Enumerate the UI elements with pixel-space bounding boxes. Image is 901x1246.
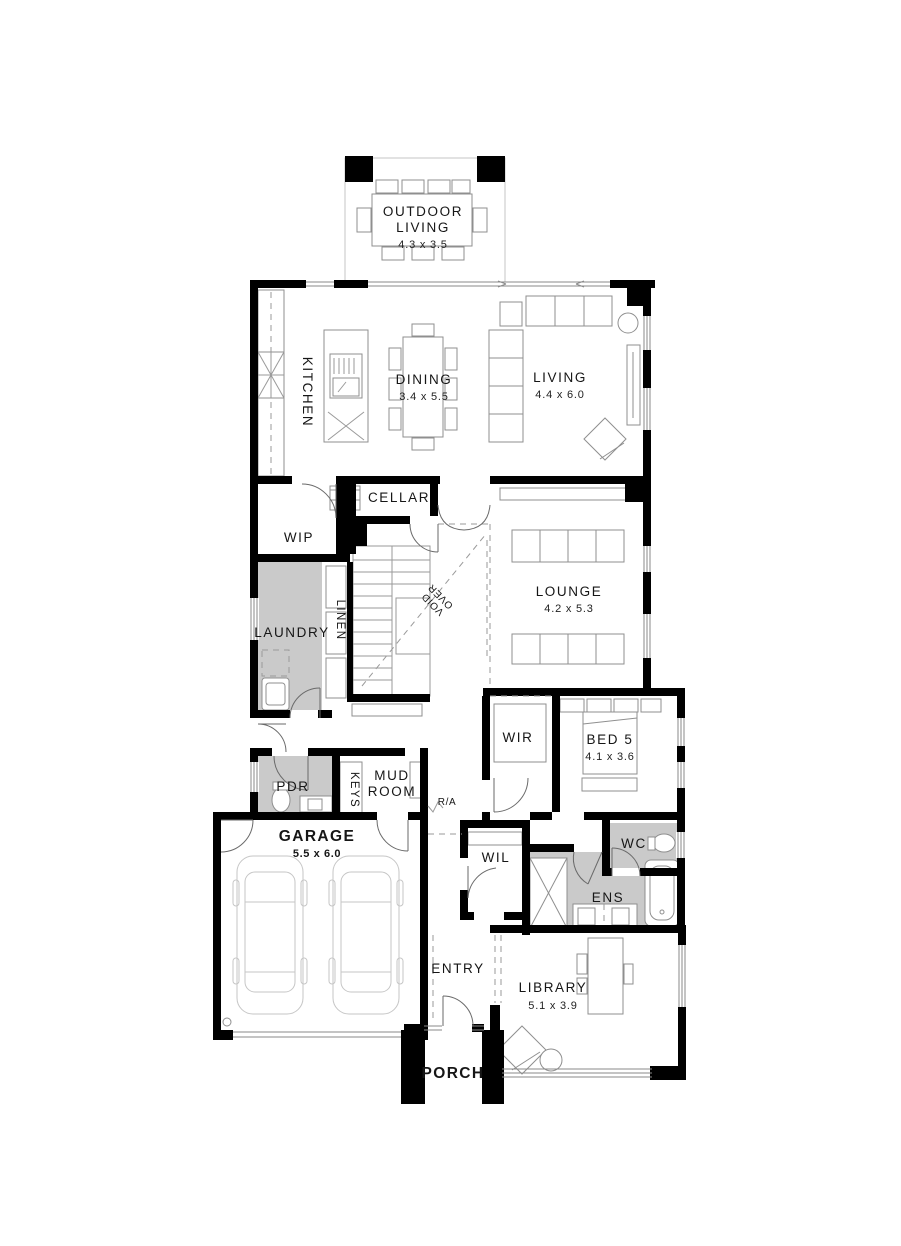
label-void-over: VOID OVER (418, 581, 455, 618)
label-library: LIBRARY (519, 980, 588, 995)
label-outdoor-living-2: LIVING (396, 220, 450, 235)
label-entry: ENTRY (431, 961, 485, 976)
window-wc (676, 832, 686, 858)
dim-lounge: 4.2 x 5.3 (544, 603, 593, 615)
label-mud-room-2: ROOM (368, 784, 416, 799)
label-kitchen: KITCHEN (300, 357, 315, 427)
window-pdr (249, 762, 259, 792)
label-porch: PORCH (422, 1065, 485, 1082)
label-wip: WIP (284, 530, 314, 545)
window-lounge-2 (642, 614, 652, 658)
label-outdoor-living-1: OUTDOOR (383, 204, 463, 219)
label-wc: WC (621, 836, 647, 851)
dim-bed5: 4.1 x 3.6 (585, 751, 634, 763)
label-mud-room-1: MUD (374, 768, 410, 783)
label-wir: WIR (502, 730, 533, 745)
label-garage: GARAGE (279, 828, 355, 845)
label-ens: ENS (592, 890, 625, 905)
dim-dining: 3.4 x 5.5 (399, 391, 448, 403)
label-bed5: BED 5 (586, 732, 633, 747)
window-living-1 (642, 316, 652, 350)
label-dining: DINING (396, 372, 453, 387)
label-wil: WIL (482, 850, 511, 865)
floor-plan-page: OUTDOOR LIVING 4.3 x 3.5 KITCHEN DINING … (0, 0, 901, 1246)
window-bed5-2 (676, 762, 686, 788)
dim-living: 4.4 x 6.0 (535, 389, 584, 401)
window-library-right (677, 945, 687, 1007)
label-linen: LINEN (334, 600, 346, 641)
label-pdr: PDR (276, 779, 309, 794)
label-lounge: LOUNGE (536, 584, 603, 599)
window-lounge-1 (642, 546, 652, 572)
dim-library: 5.1 x 3.9 (528, 1000, 577, 1012)
sliding-door-top (368, 281, 610, 287)
lounge-furniture (500, 488, 626, 664)
floor-plan-svg: OUTDOOR LIVING 4.3 x 3.5 KITCHEN DINING … (0, 0, 901, 1246)
garage-cars (223, 856, 403, 1026)
bed5-furniture (494, 699, 661, 791)
label-ra: R/A (438, 797, 456, 808)
label-living: LIVING (533, 370, 587, 385)
window-top-left (306, 279, 334, 289)
dim-outdoor-living: 4.3 x 3.5 (398, 239, 447, 251)
window-bed5-1 (676, 718, 686, 746)
dim-garage: 5.5 x 6.0 (293, 848, 341, 860)
label-cellar: CELLAR (368, 490, 430, 505)
label-laundry: LAUNDRY (254, 625, 329, 640)
garage-door-opening (233, 1028, 401, 1042)
window-living-2 (642, 388, 652, 430)
dining-furniture (389, 324, 457, 450)
stairs (353, 546, 430, 696)
label-keys: KEYS (348, 772, 360, 808)
